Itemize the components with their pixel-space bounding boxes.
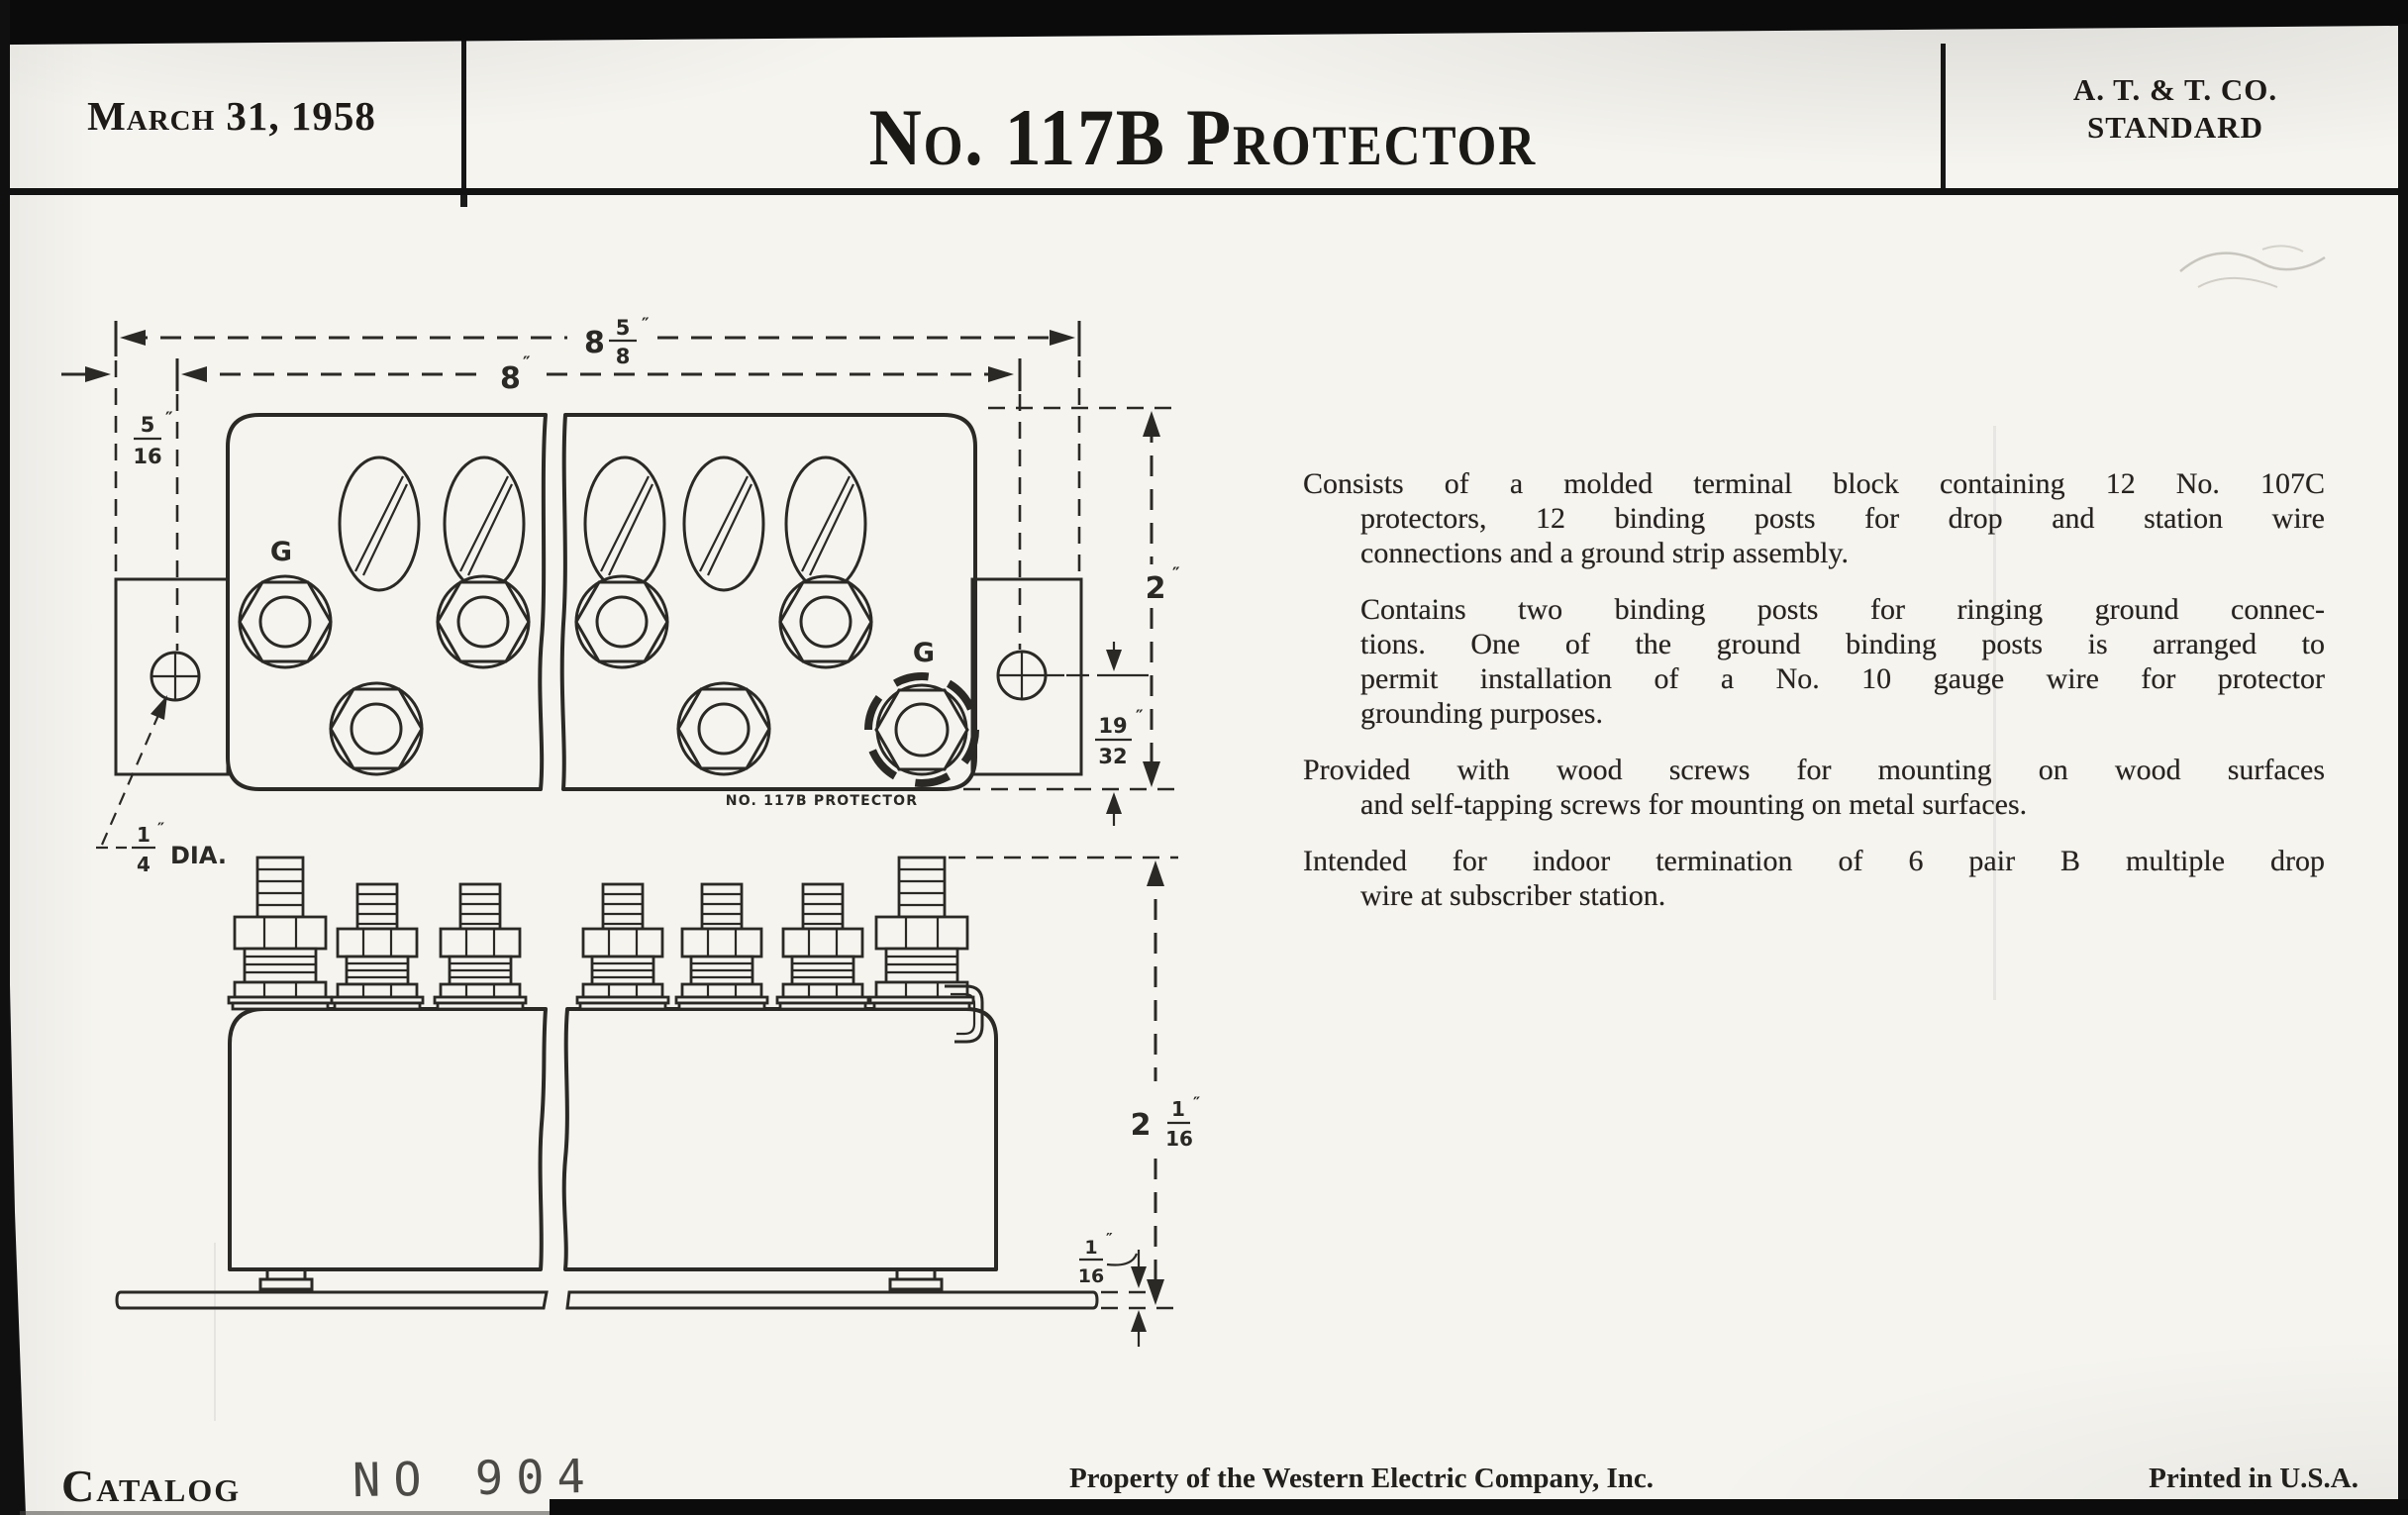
binding-post-hex (678, 683, 769, 774)
binding-post-hex (780, 576, 871, 667)
mounting-foot (890, 1269, 942, 1289)
dim-mount-width-whole: 8 (500, 361, 521, 396)
body-text: Consists of a molded terminal block cont… (1303, 466, 2325, 935)
side-view: 2 1 16 ″ 1 16 ″ (117, 858, 1200, 1347)
body-line: connections and a ground strip assembly. (1360, 536, 2325, 570)
dim-plate-thickness: 1 16 ″ (1078, 1230, 1183, 1347)
protector-screw (786, 457, 865, 590)
mounting-hole-right (997, 652, 1064, 699)
mounting-ear-right (972, 579, 1081, 774)
binding-post-hex (576, 576, 667, 667)
protector-screw (445, 457, 524, 590)
protector-screws (340, 457, 865, 590)
scan-edge-top (0, 0, 2408, 48)
body-line: permit installation of a No. 10 gauge wi… (1360, 661, 2325, 696)
technical-drawing: 8 5 8 ″ 8 ″ 5 16 ″ (40, 198, 1287, 1386)
ground-label: G (913, 638, 935, 668)
dim-overall-width: 8 5 8 ″ (120, 315, 1075, 368)
top-view: 8 5 8 ″ 8 ″ 5 16 ″ (61, 315, 1180, 876)
protector-screw (340, 457, 419, 590)
binding-post-side (332, 884, 423, 1009)
page-title: No. 117B Protector (463, 91, 1943, 184)
dim-hole-offset: 19 32 ″ (1066, 642, 1149, 826)
body-line: Consists of a molded terminal block cont… (1303, 466, 2325, 501)
mounting-hole-left (150, 653, 200, 700)
dim-hole-offset-unit: ″ (1136, 707, 1144, 727)
scan-fold-line (1993, 426, 1996, 1000)
binding-post-hex (331, 683, 422, 774)
binding-post-side (777, 884, 868, 1009)
dim-edge-offset-den: 16 (133, 445, 161, 468)
binding-post-side (676, 884, 767, 1009)
part-stamp-label: NO. 117B PROTECTOR (726, 793, 918, 809)
body-line: wire at subscriber station. (1360, 878, 2325, 913)
protector-screw (585, 457, 664, 590)
footer-catalog-label: Catalog (61, 1460, 241, 1512)
binding-post-hex (438, 576, 529, 667)
scanned-catalog-page: March 31, 1958 No. 117B Protector A. T. … (0, 0, 2408, 1515)
body-line: grounding purposes. (1360, 696, 2325, 731)
dim-hole-dia-suffix: DIA. (170, 842, 227, 869)
binding-post-side (229, 858, 332, 1009)
binding-post-side (577, 884, 668, 1009)
protector-screw (684, 457, 763, 590)
side-block-left (230, 1009, 546, 1269)
ground-label: G (270, 537, 292, 567)
dim-edge-offset-unit: ″ (165, 409, 173, 429)
dim-block-height-whole: 2 (1146, 571, 1166, 606)
dim-hole-offset-den: 32 (1098, 745, 1127, 768)
dim-hole-dia-unit: ″ (157, 819, 164, 838)
body-line: tions. One of the ground binding posts i… (1360, 627, 2325, 661)
ground-binding-post (868, 676, 975, 783)
scan-edge-bottom (550, 1499, 2408, 1515)
body-line: Provided with wood screws for mounting o… (1303, 753, 2325, 787)
header-date: March 31, 1958 (0, 92, 463, 140)
dim-side-height-num: 1 (1171, 1097, 1185, 1121)
footer-property-notice: Property of the Western Electric Company… (1020, 1463, 1703, 1495)
dim-side-height: 2 1 16 ″ (949, 858, 1200, 1305)
dim-hole-dia-den: 4 (137, 853, 150, 876)
dim-plate-thickness-num: 1 (1084, 1237, 1097, 1259)
dim-mount-width-unit: ″ (523, 353, 531, 373)
header-rule (8, 188, 2400, 195)
body-line: Intended for indoor termination of 6 pai… (1303, 844, 2325, 878)
base-plate-left (117, 1292, 547, 1308)
body-paragraph: Provided with wood screws for mounting o… (1303, 753, 2325, 822)
scan-edge-left (0, 0, 26, 1515)
header-org-line1: A. T. & T. CO. (1943, 71, 2408, 109)
dim-plate-thickness-unit: ″ (1106, 1230, 1113, 1248)
body-paragraph: Contains two binding posts for ringing g… (1303, 592, 2325, 731)
body-paragraph: Intended for indoor termination of 6 pai… (1303, 844, 2325, 913)
pencil-smudge (2168, 230, 2337, 309)
dim-side-height-whole: 2 (1131, 1108, 1152, 1143)
dim-block-height: 2 ″ (963, 408, 1180, 789)
body-line: Contains two binding posts for ringing g… (1360, 592, 2325, 627)
side-block-right (564, 1009, 996, 1269)
dim-hole-offset-num: 19 (1098, 714, 1127, 738)
dim-overall-width-unit: ″ (642, 315, 650, 335)
scan-edge-right (2398, 24, 2408, 1515)
header-divider-right (1941, 44, 1946, 188)
dim-overall-width-whole: 8 (584, 326, 605, 360)
binding-post-hex (240, 576, 331, 667)
header-org-line2: STANDARD (1943, 109, 2408, 147)
body-line: protectors, 12 binding posts for drop an… (1360, 501, 2325, 536)
dim-overall-width-den: 8 (616, 345, 631, 368)
header-divider-left (461, 40, 466, 188)
body-paragraph: Consists of a molded terminal block cont… (1303, 466, 2325, 570)
header-org: A. T. & T. CO. STANDARD (1943, 71, 2408, 147)
mounting-foot (260, 1269, 312, 1289)
dim-side-height-den: 16 (1165, 1127, 1193, 1151)
dim-overall-width-num: 5 (616, 316, 631, 340)
dim-block-height-unit: ″ (1172, 564, 1180, 584)
scan-fold-line (214, 1243, 216, 1421)
dim-plate-thickness-den: 16 (1078, 1265, 1104, 1287)
footer-printed-notice: Printed in U.S.A. (2109, 1463, 2358, 1495)
binding-posts (240, 576, 871, 774)
dim-side-height-unit: ″ (1193, 1093, 1200, 1112)
body-line: and self-tapping screws for mounting on … (1360, 787, 2325, 822)
base-plate-right (567, 1292, 1097, 1308)
binding-post-side (435, 884, 526, 1009)
dim-edge-offset-num: 5 (141, 413, 155, 437)
dim-edge-offset: 5 16 ″ (61, 366, 173, 468)
page-title-text: No. 117B Protector (869, 91, 1538, 184)
dim-hole-dia-num: 1 (137, 823, 150, 847)
